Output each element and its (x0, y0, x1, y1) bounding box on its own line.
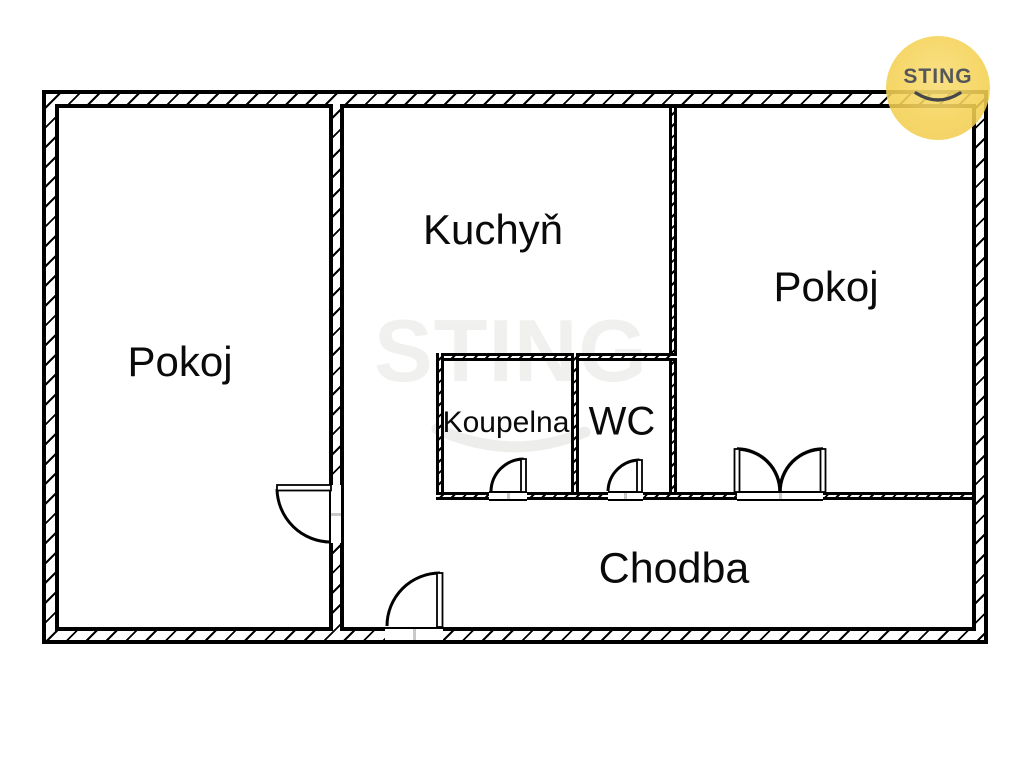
sting-logo-smile-icon (912, 90, 964, 106)
door-opening-koupelna (489, 491, 527, 501)
sting-logo: STING (886, 36, 990, 140)
room-label-chodba: Chodba (599, 545, 750, 594)
door-opening-pokoj-right (737, 491, 823, 501)
room-label-wc: WC (589, 400, 656, 445)
room-label-pokoj-right: Pokoj (773, 263, 878, 311)
room-label-kuchyn: Kuchyň (423, 206, 563, 254)
door-opening-entrance (385, 627, 443, 644)
wall-kitchen-pokoj (669, 108, 677, 500)
wall-bathroom-wc-divider (571, 353, 579, 500)
floorplan-page: STING (0, 0, 1024, 768)
sting-watermark-text: STING (374, 300, 648, 402)
room-label-koupelna: Koupelna (443, 406, 570, 440)
room-label-pokoj-left: Pokoj (127, 338, 232, 386)
door-opening-wc (608, 491, 643, 501)
wall-bathroom-top (436, 353, 677, 361)
door-opening-pokoj-left (329, 485, 343, 543)
sting-logo-text: STING (903, 65, 972, 89)
